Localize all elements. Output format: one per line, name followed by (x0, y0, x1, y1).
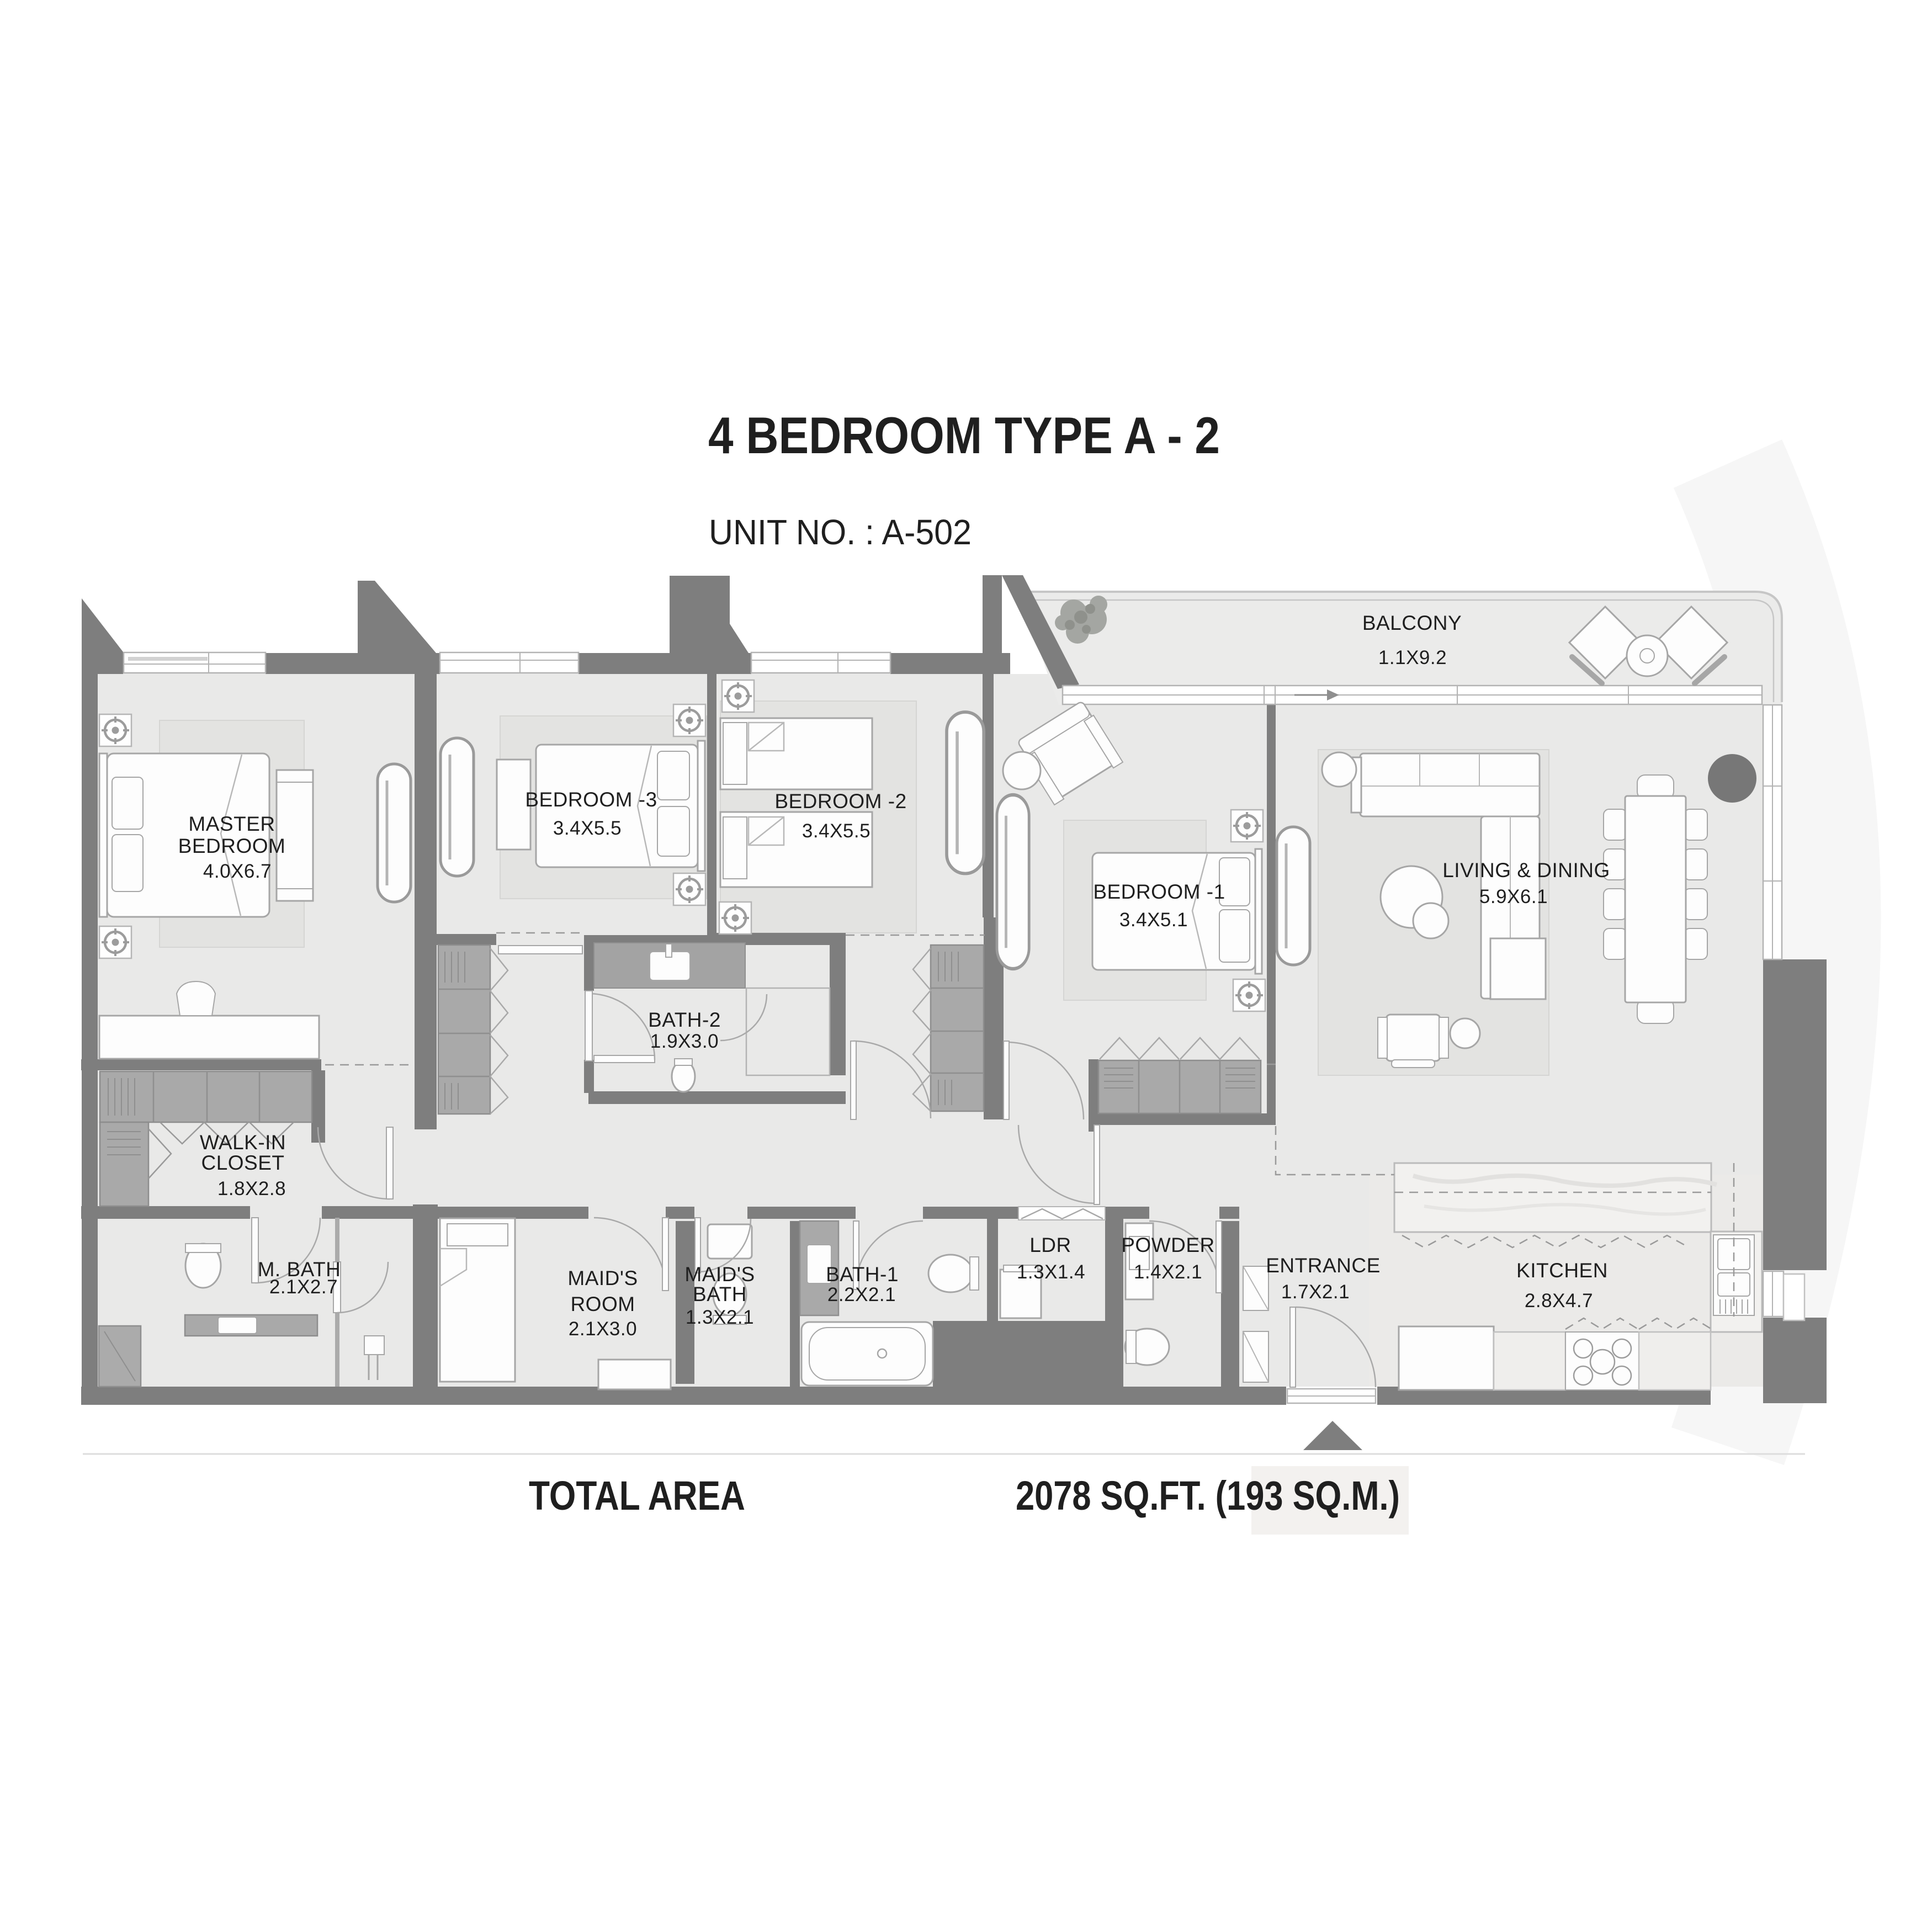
svg-text:4 BEDROOM TYPE A - 2: 4 BEDROOM TYPE A - 2 (708, 406, 1220, 464)
svg-text:ENTRANCE: ENTRANCE (1266, 1254, 1381, 1277)
svg-text:KITCHEN: KITCHEN (1516, 1259, 1608, 1282)
svg-text:3.4X5.1: 3.4X5.1 (1119, 909, 1188, 931)
svg-text:MASTER: MASTER (188, 813, 275, 835)
svg-text:2.8X4.7: 2.8X4.7 (1525, 1290, 1593, 1312)
svg-text:BEDROOM: BEDROOM (178, 835, 286, 857)
svg-text:BEDROOM -2: BEDROOM -2 (774, 790, 906, 813)
svg-text:1.8X2.8: 1.8X2.8 (217, 1178, 286, 1199)
svg-text:2.1X2.7: 2.1X2.7 (269, 1276, 338, 1298)
svg-text:1.4X2.1: 1.4X2.1 (1134, 1261, 1202, 1283)
svg-text:LDR: LDR (1029, 1234, 1071, 1256)
svg-text:BEDROOM -3: BEDROOM -3 (525, 788, 657, 811)
svg-text:3.4X5.5: 3.4X5.5 (802, 820, 871, 842)
svg-text:1.7X2.1: 1.7X2.1 (1281, 1281, 1350, 1303)
svg-text:5.9X6.1: 5.9X6.1 (1479, 886, 1548, 907)
svg-text:1.9X3.0: 1.9X3.0 (650, 1031, 719, 1052)
svg-text:4.0X6.7: 4.0X6.7 (203, 861, 272, 882)
svg-text:LIVING & DINING: LIVING & DINING (1442, 859, 1610, 882)
svg-text:ROOM: ROOM (570, 1293, 635, 1315)
svg-text:BATH-1: BATH-1 (826, 1263, 899, 1286)
svg-text:MAID'S: MAID'S (567, 1267, 638, 1289)
svg-text:BATH: BATH (693, 1283, 747, 1305)
svg-text:1.1X9.2: 1.1X9.2 (1378, 647, 1447, 668)
svg-text:WALK-IN: WALK-IN (200, 1131, 286, 1154)
svg-text:3.4X5.5: 3.4X5.5 (553, 818, 622, 839)
svg-text:BALCONY: BALCONY (1362, 612, 1462, 634)
svg-text:CLOSET: CLOSET (201, 1151, 284, 1174)
svg-text:TOTAL AREA: TOTAL AREA (529, 1473, 745, 1519)
svg-text:2078 SQ.FT. (193 SQ.M.): 2078 SQ.FT. (193 SQ.M.) (1016, 1473, 1400, 1519)
svg-text:POWDER: POWDER (1121, 1234, 1215, 1256)
svg-text:2.1X3.0: 2.1X3.0 (569, 1318, 637, 1340)
svg-text:MAID'S: MAID'S (684, 1263, 755, 1286)
svg-text:BEDROOM -1: BEDROOM -1 (1093, 880, 1225, 903)
svg-text:1.3X1.4: 1.3X1.4 (1017, 1261, 1085, 1283)
svg-text:1.3X2.1: 1.3X2.1 (686, 1307, 754, 1328)
svg-text:BATH-2: BATH-2 (648, 1009, 721, 1031)
svg-text:UNIT NO. : A-502: UNIT NO. : A-502 (709, 512, 972, 552)
svg-text:2.2X2.1: 2.2X2.1 (827, 1284, 896, 1305)
